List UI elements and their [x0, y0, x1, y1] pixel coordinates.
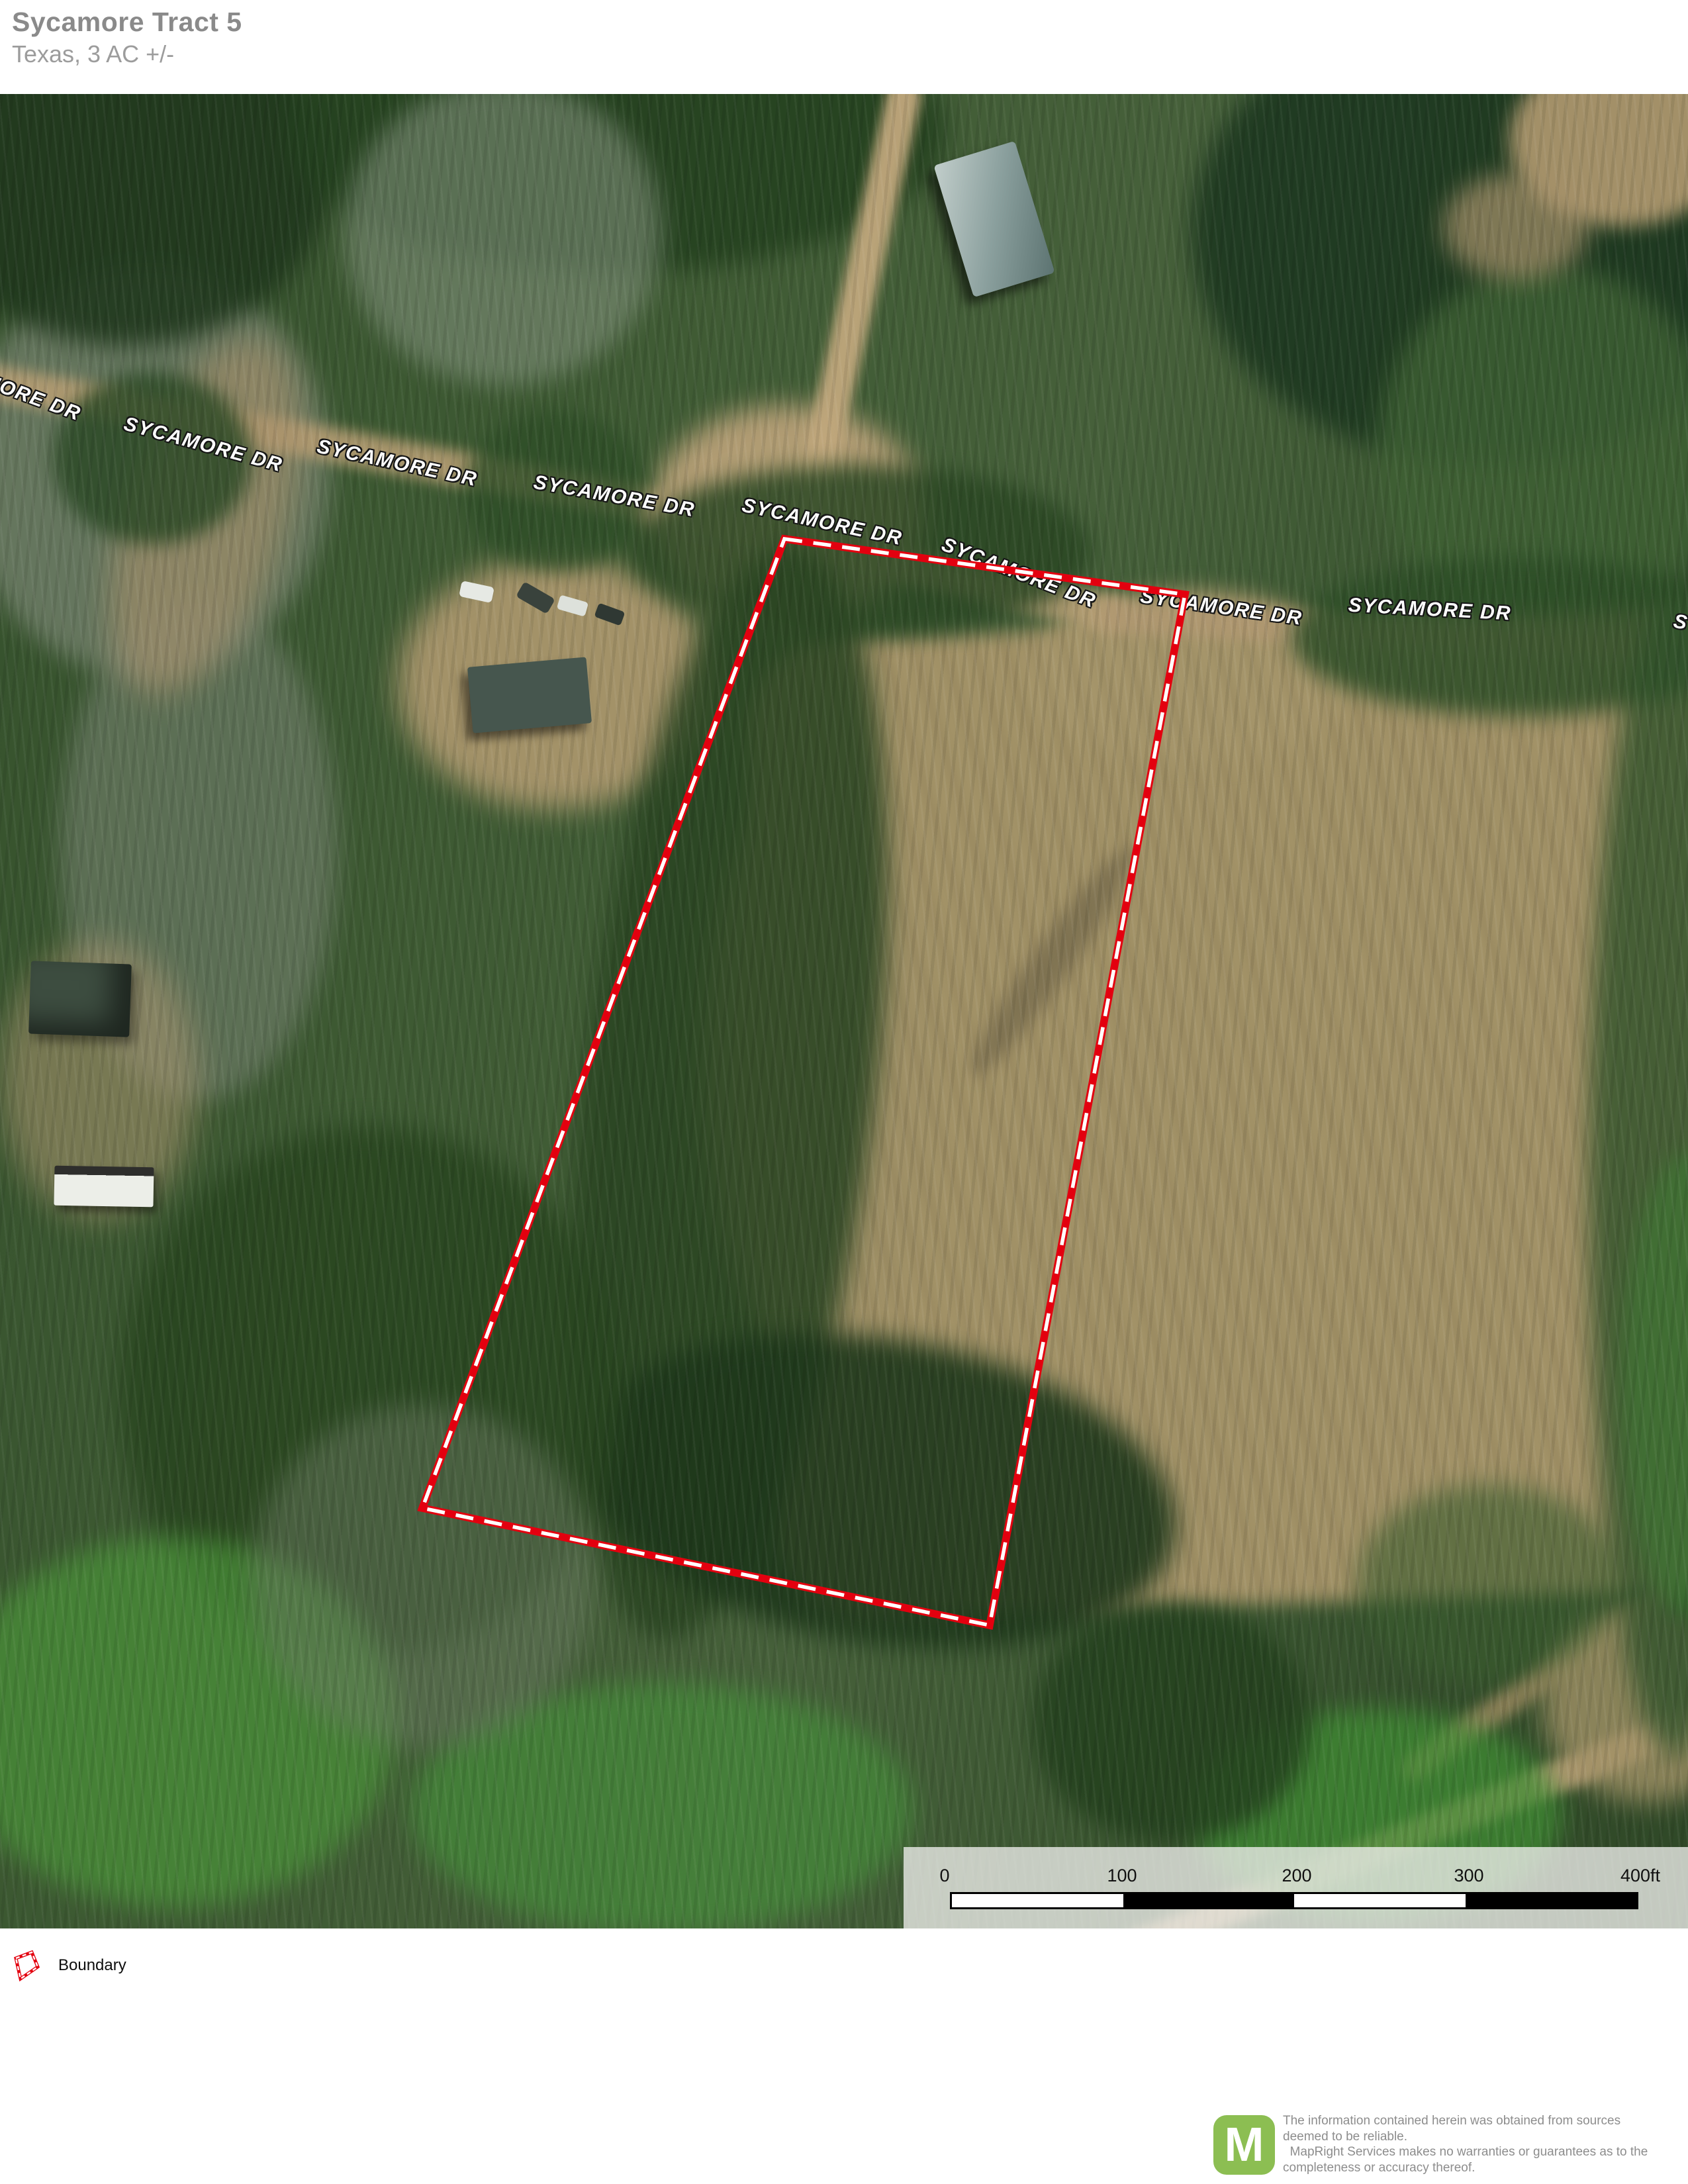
- legend: Boundary: [12, 1949, 126, 1982]
- boundary-polygon: [0, 94, 1688, 1928]
- legend-label: Boundary: [58, 1956, 126, 1975]
- mapright-logo: M: [1213, 2115, 1275, 2175]
- mapright-logo-letter: M: [1225, 2121, 1264, 2169]
- disclaimer-line: MapRight Services makes no warranties or…: [1283, 2144, 1688, 2160]
- map-export-page: Sycamore Tract 5 Texas, 3 AC +/-: [0, 0, 1688, 2184]
- disclaimer-line: completeness or accuracy thereof.: [1283, 2160, 1688, 2176]
- scale-tick-label: 300: [1439, 1866, 1499, 1886]
- scale-tick-label: 400ft: [1604, 1866, 1677, 1886]
- scale-segment: [952, 1894, 1123, 1907]
- scale-tick-label: 100: [1092, 1866, 1152, 1886]
- page-subtitle: Texas, 3 AC +/-: [12, 41, 242, 68]
- disclaimer-line: deemed to be reliable.: [1283, 2129, 1688, 2145]
- scale-bar: 0 100 200 300 400ft: [904, 1847, 1688, 1928]
- scale-segment: [1294, 1894, 1466, 1907]
- scale-segment: [1466, 1894, 1637, 1907]
- scale-segment: [1123, 1894, 1295, 1907]
- scale-tick-label: 200: [1267, 1866, 1327, 1886]
- disclaimer-line: The information contained herein was obt…: [1283, 2113, 1688, 2129]
- header: Sycamore Tract 5 Texas, 3 AC +/-: [12, 7, 242, 68]
- aerial-map: SYCAMORE DR SYCAMORE DR SYCAMORE DR SYCA…: [0, 94, 1688, 1928]
- scale-tick-label: 0: [915, 1866, 974, 1886]
- boundary-legend-icon: [12, 1949, 41, 1982]
- scale-bar-rule: [950, 1892, 1638, 1909]
- disclaimer: The information contained herein was obt…: [1283, 2113, 1688, 2175]
- page-title: Sycamore Tract 5: [12, 7, 242, 37]
